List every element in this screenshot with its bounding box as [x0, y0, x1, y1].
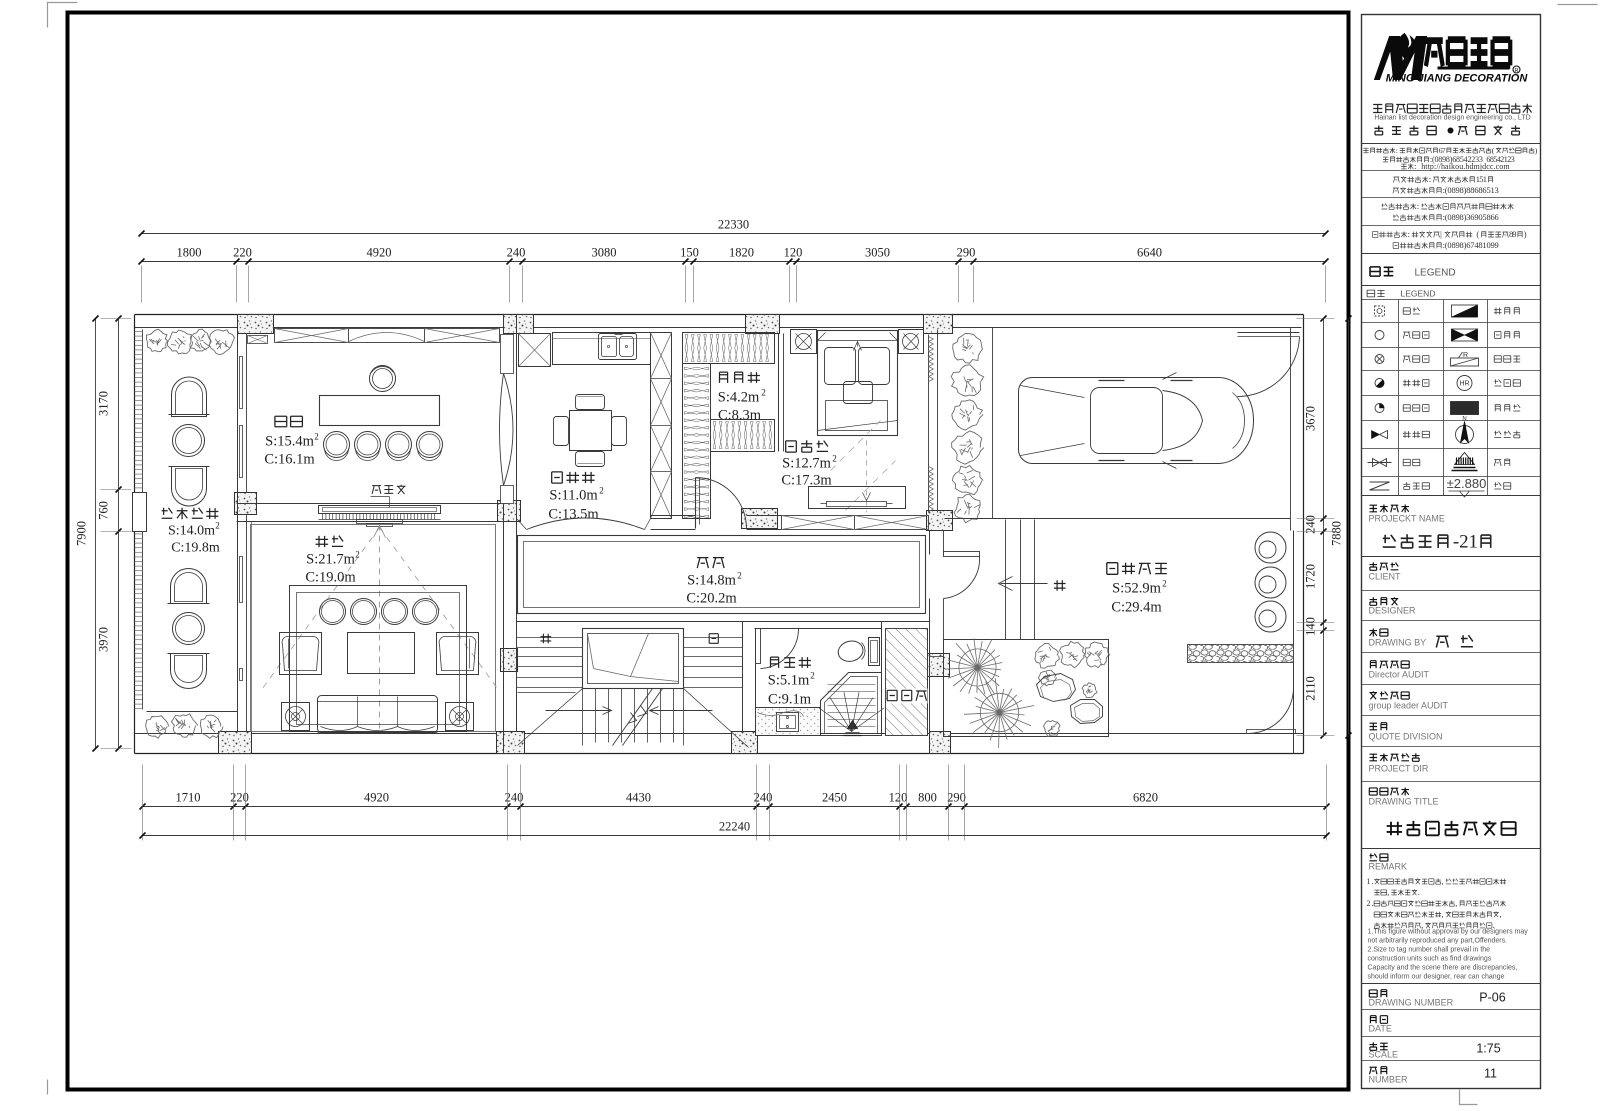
svg-text:3080: 3080	[592, 246, 617, 260]
svg-text:C:16.1m: C:16.1m	[264, 452, 315, 468]
svg-text:S:12.7m: S:12.7m	[782, 456, 831, 472]
svg-text:DESIGNER: DESIGNER	[1369, 606, 1417, 616]
svg-text:6640: 6640	[1137, 246, 1162, 260]
svg-text:2: 2	[599, 486, 604, 496]
svg-text:2: 2	[810, 671, 815, 681]
svg-text:DATE: DATE	[1369, 1024, 1392, 1034]
svg-text::(0898)88686513: :(0898)88686513	[1443, 185, 1499, 195]
svg-text:89: 89	[1509, 229, 1517, 239]
svg-text:SCALE: SCALE	[1369, 1050, 1399, 1060]
svg-text:151: 151	[1476, 174, 1487, 184]
svg-text:C:19.0m: C:19.0m	[305, 570, 356, 586]
svg-text:800: 800	[918, 791, 937, 805]
svg-text:240: 240	[507, 246, 526, 260]
svg-text:QUOTE DIVISION: QUOTE DIVISION	[1369, 732, 1443, 742]
svg-text:,: ,	[1442, 910, 1444, 919]
svg-text:2: 2	[1162, 579, 1167, 589]
svg-text:290: 290	[957, 246, 976, 260]
svg-text:4430: 4430	[626, 791, 651, 805]
svg-text:290: 290	[947, 791, 966, 805]
svg-text:3670: 3670	[1304, 406, 1318, 431]
svg-text:2: 2	[314, 432, 319, 442]
svg-text:2.: 2.	[1367, 899, 1374, 908]
svg-text:not arbitrarily reproduced any: not arbitrarily reproduced any part,Offe…	[1368, 938, 1508, 945]
svg-text:240: 240	[1304, 515, 1318, 534]
svg-text:Director AUDIT: Director AUDIT	[1369, 670, 1430, 680]
svg-text:C:8.3m: C:8.3m	[718, 408, 762, 424]
svg-text:Hainan list decoration design: Hainan list decoration design engineerin…	[1374, 115, 1530, 122]
svg-text:140: 140	[1304, 617, 1318, 636]
svg-text:S:15.4m: S:15.4m	[265, 434, 314, 450]
svg-text:1820: 1820	[729, 246, 754, 260]
svg-text:LEGEND: LEGEND	[1401, 289, 1436, 299]
svg-text:,: ,	[1500, 910, 1502, 919]
svg-text:DRAWING TITLE: DRAWING TITLE	[1369, 797, 1439, 807]
svg-text:-21: -21	[1453, 532, 1478, 553]
svg-text:4920: 4920	[367, 246, 392, 260]
svg-text:should inform our designer, re: should inform our designer, rear can cha…	[1368, 974, 1505, 981]
svg-text::: :	[1429, 174, 1431, 184]
svg-text:±2.880: ±2.880	[1447, 476, 1487, 491]
svg-text:1:75: 1:75	[1476, 1042, 1500, 1056]
svg-text:7880: 7880	[1330, 521, 1344, 546]
svg-text:Capacity and the scene there a: Capacity and the scene there are discrep…	[1368, 965, 1518, 972]
svg-text:2: 2	[832, 454, 837, 464]
svg-text:2: 2	[761, 388, 766, 398]
svg-text:(: (	[1492, 146, 1495, 155]
svg-text:N: N	[1462, 417, 1466, 423]
svg-text::(0898)36905866: :(0898)36905866	[1443, 212, 1499, 222]
svg-text::: :	[1417, 201, 1419, 211]
svg-text:,: ,	[1455, 899, 1457, 908]
svg-text:http://haikou.hdmjdcc.com: http://haikou.hdmjdcc.com	[1421, 162, 1510, 171]
svg-text:group leader AUDIT: group leader AUDIT	[1369, 701, 1449, 711]
svg-text:67: 67	[1439, 146, 1446, 155]
svg-text:3970: 3970	[97, 627, 111, 652]
svg-text:22240: 22240	[719, 820, 750, 834]
svg-text:11: 11	[1484, 1067, 1497, 1081]
svg-text:,: ,	[1387, 888, 1389, 897]
svg-text:NUMBER: NUMBER	[1369, 1075, 1409, 1085]
svg-text:S:14.8m: S:14.8m	[687, 573, 736, 589]
svg-text:C:19.8m: C:19.8m	[171, 541, 220, 556]
svg-text:2: 2	[215, 521, 220, 531]
svg-text:120: 120	[784, 246, 803, 260]
svg-text:C:13.5m: C:13.5m	[548, 507, 599, 523]
svg-text:HR: HR	[1459, 381, 1469, 388]
svg-text:2: 2	[355, 550, 360, 560]
svg-text:S:52.9m: S:52.9m	[1112, 581, 1161, 597]
svg-text:4920: 4920	[364, 791, 389, 805]
svg-text:MING JIANG DECORATION: MING JIANG DECORATION	[1386, 73, 1529, 85]
svg-text:S:21.7m: S:21.7m	[306, 552, 355, 568]
svg-text:P-06: P-06	[1479, 991, 1505, 1005]
svg-text:1.This figure without approval: 1.This figure without approval by our de…	[1368, 929, 1529, 936]
svg-text:220: 220	[230, 791, 249, 805]
svg-text:7900: 7900	[75, 521, 89, 546]
svg-text:220: 220	[233, 246, 252, 260]
svg-text:760: 760	[97, 501, 111, 520]
svg-text:22330: 22330	[718, 218, 749, 232]
svg-text:R: R	[1463, 352, 1468, 359]
svg-text:S:5.1m: S:5.1m	[768, 673, 810, 689]
svg-text:2450: 2450	[822, 791, 847, 805]
svg-text:(: (	[1476, 229, 1479, 239]
svg-text::(0898)67481099: :(0898)67481099	[1443, 240, 1499, 250]
svg-text:): )	[1524, 229, 1527, 239]
svg-text:1800: 1800	[177, 246, 202, 260]
svg-text:1710: 1710	[176, 791, 201, 805]
svg-text:1720: 1720	[1304, 564, 1318, 589]
svg-text:120: 120	[889, 791, 908, 805]
svg-text:): )	[1535, 146, 1538, 155]
svg-text::: :	[1408, 229, 1410, 239]
svg-text:S:11.0m: S:11.0m	[549, 488, 598, 504]
svg-text:3050: 3050	[865, 246, 890, 260]
svg-text:LEGEND: LEGEND	[1415, 268, 1456, 279]
svg-text:2110: 2110	[1304, 676, 1318, 701]
svg-text:,: ,	[1442, 877, 1444, 886]
svg-text:C:20.2m: C:20.2m	[686, 591, 737, 607]
svg-text:construction units such as fin: construction units such as find drawings	[1368, 956, 1492, 963]
svg-text:C:9.1m: C:9.1m	[768, 692, 812, 708]
svg-text:REMARK: REMARK	[1369, 862, 1408, 872]
svg-text:C:29.4m: C:29.4m	[1111, 600, 1162, 616]
svg-text:6820: 6820	[1133, 791, 1158, 805]
svg-text:PROJECT DIR: PROJECT DIR	[1369, 764, 1429, 774]
svg-text::: :	[1396, 146, 1398, 155]
svg-text::: :	[1414, 162, 1416, 171]
svg-text:S:14.0m: S:14.0m	[168, 524, 215, 539]
svg-text:|: |	[1440, 229, 1442, 239]
svg-text:1.: 1.	[1367, 877, 1374, 886]
svg-text:2: 2	[737, 571, 742, 581]
svg-text:.: .	[1418, 888, 1420, 897]
svg-text:3170: 3170	[97, 391, 111, 416]
svg-text:DRAWING NUMBER: DRAWING NUMBER	[1369, 998, 1454, 1008]
svg-text:S:4.2m: S:4.2m	[718, 390, 760, 406]
svg-text:CLIENT: CLIENT	[1369, 572, 1402, 582]
svg-text:150: 150	[680, 246, 699, 260]
svg-text:DRAWING BY: DRAWING BY	[1369, 638, 1427, 648]
svg-text:PROJECKT NAME: PROJECKT NAME	[1369, 514, 1445, 524]
svg-text:2.Size to tag number shall pre: 2.Size to tag number shall prevail in th…	[1368, 947, 1491, 954]
